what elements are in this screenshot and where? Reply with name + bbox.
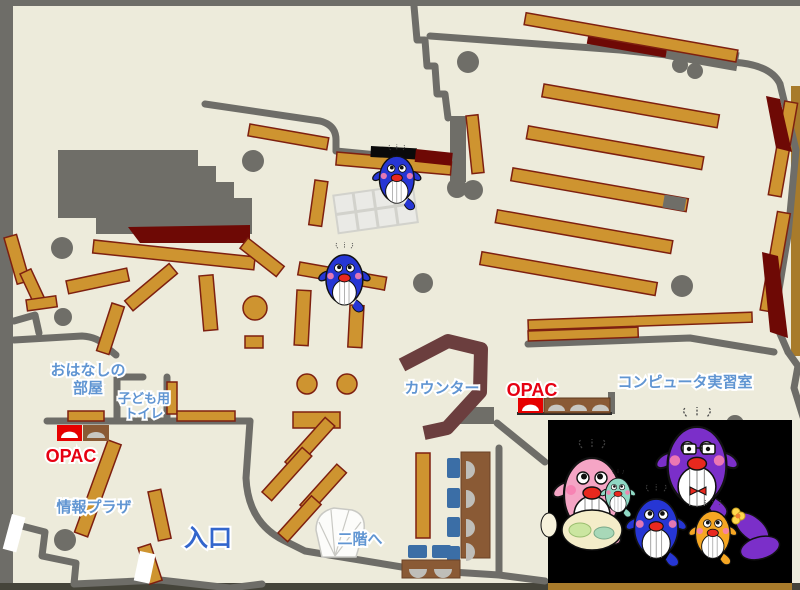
label-opac-right: OPAC [507,380,558,400]
label-info-plaza: 情報プラザ [56,498,131,516]
library-floor-map: おはなしの 部屋 子ども用 トイレ OPAC 情報プラザ 入口 二階へ カウンタ… [0,0,800,590]
label-kids-toilet-line1: 子ども用 [118,391,170,406]
label-storytelling-room-line2: 部屋 [73,379,103,397]
left-border [0,0,13,590]
label-entrance: 入口 [184,525,232,552]
top-border [0,0,800,6]
mascot-family-panel [541,407,792,590]
floor-map-svg: おはなしの 部屋 子ども用 トイレ OPAC 情報プラザ 入口 二階へ カウンタ… [0,0,800,590]
label-counter: カウンター [404,380,479,397]
label-opac-left: OPAC [46,446,97,466]
opac-station-right [517,398,612,415]
label-computer-room: コンピュータ実習室 [617,373,752,391]
label-to-second-floor: 二階へ [337,530,382,548]
wall-column [450,116,466,182]
label-kids-toilet-line2: トイレ [124,406,163,421]
opac-station-left [57,425,109,441]
label-storytelling-room-line1: おはなしの [50,362,125,379]
